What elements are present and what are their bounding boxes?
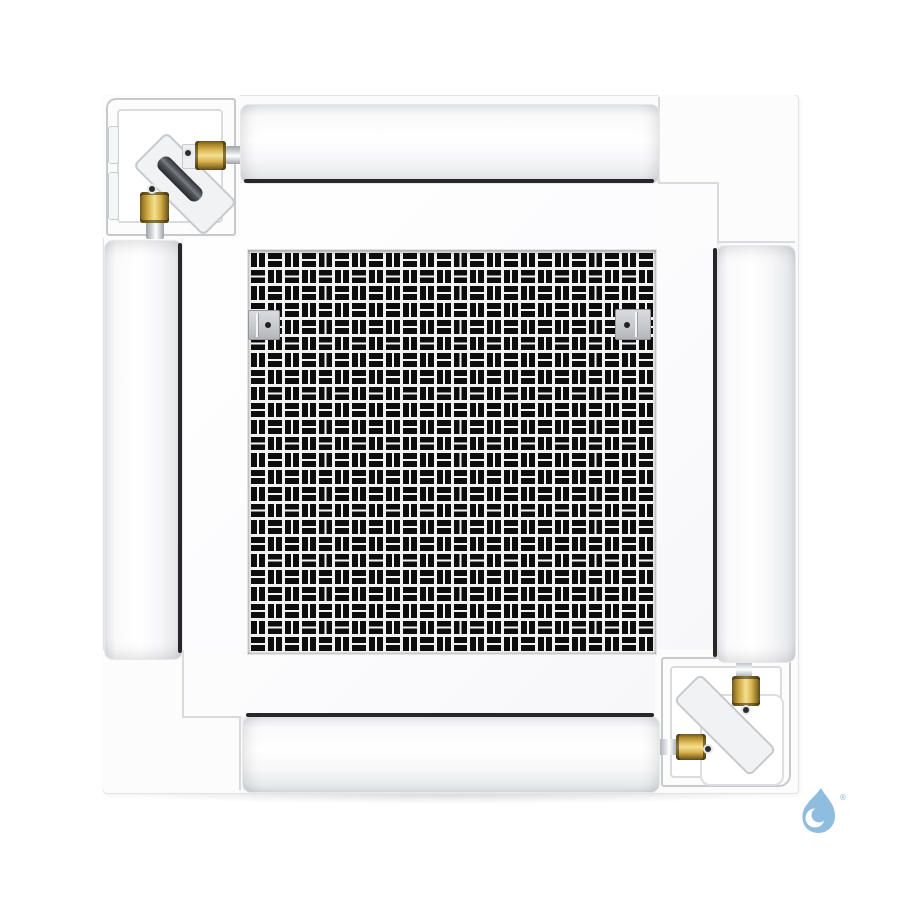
grille-cell	[538, 403, 552, 417]
brass-flare-fitting-top	[195, 141, 226, 170]
grille-cell	[622, 554, 636, 568]
grille-cell	[639, 520, 653, 534]
grille-cell	[285, 453, 299, 467]
grille-cell	[470, 320, 484, 334]
grille-cell	[521, 604, 535, 618]
grille-cell	[335, 286, 349, 300]
grille-cell	[251, 353, 265, 367]
grille-cell	[504, 587, 518, 601]
grille-cell	[319, 387, 333, 401]
grille-cell	[639, 637, 653, 651]
grille-cell	[470, 587, 484, 601]
grille-cell	[251, 504, 265, 518]
grille-cell	[251, 587, 265, 601]
grille-cell	[319, 337, 333, 351]
grille-cell	[589, 286, 603, 300]
grille-cell	[319, 487, 333, 501]
grille-cell	[352, 420, 366, 434]
grille-cell	[420, 286, 434, 300]
grille-cell	[487, 337, 501, 351]
grille-cell	[454, 487, 468, 501]
grille-cell	[521, 453, 535, 467]
grille-cell	[386, 370, 400, 384]
grille-cell	[470, 604, 484, 618]
grille-cell	[386, 453, 400, 467]
grille-cell	[319, 437, 333, 451]
grille-cell	[521, 637, 535, 651]
brass-flare-fitting-top	[732, 676, 760, 706]
grille-cell	[302, 520, 316, 534]
grille-cell	[639, 270, 653, 284]
grille-cell	[589, 587, 603, 601]
grille-cell	[538, 570, 552, 584]
frame-slot	[108, 126, 119, 164]
grille-cell	[369, 403, 383, 417]
grille-cell	[538, 537, 552, 551]
grille-cell	[487, 554, 501, 568]
grille-cell	[403, 353, 417, 367]
grille-cell	[251, 554, 265, 568]
grille-cell	[386, 604, 400, 618]
grille-cell	[352, 587, 366, 601]
grille-cell	[268, 570, 282, 584]
grille-cell	[487, 320, 501, 334]
grille-cell	[420, 621, 434, 635]
panel-seam	[182, 650, 184, 717]
flap-slot-gap-bottom	[246, 713, 654, 717]
grille-cell	[572, 353, 586, 367]
grille-cell	[386, 537, 400, 551]
grille-cell	[386, 554, 400, 568]
grille-cell	[302, 303, 316, 317]
grille-cell	[454, 286, 468, 300]
grille-cell	[555, 504, 569, 518]
grille-cell	[639, 420, 653, 434]
grille-cell	[470, 387, 484, 401]
grille-cell	[504, 403, 518, 417]
grille-cell	[589, 253, 603, 267]
grille-cell	[420, 420, 434, 434]
panel-seam	[182, 716, 241, 718]
grille-cell	[538, 270, 552, 284]
grille-cell	[403, 453, 417, 467]
grille-cell	[572, 320, 586, 334]
grille-cell	[521, 353, 535, 367]
grille-cell	[487, 621, 501, 635]
grille-cell	[555, 286, 569, 300]
grille-cell	[302, 420, 316, 434]
corner-panel-top-right	[658, 95, 797, 242]
grille-cell	[285, 621, 299, 635]
grille-cell	[369, 504, 383, 518]
product-photo-cassette-ac: ®	[0, 0, 900, 900]
grille-cell	[639, 387, 653, 401]
grille-cell	[319, 353, 333, 367]
grille-cell	[521, 270, 535, 284]
grille-cell	[521, 587, 535, 601]
grille-cell	[352, 303, 366, 317]
grille-cell	[572, 470, 586, 484]
grille-cell	[487, 637, 501, 651]
grille-cell	[504, 487, 518, 501]
grille-cell	[268, 403, 282, 417]
grille-cell	[369, 353, 383, 367]
grille-cell	[437, 604, 451, 618]
grille-cell	[420, 470, 434, 484]
grille-cell	[605, 554, 619, 568]
grille-cell	[454, 353, 468, 367]
grille-cell	[572, 437, 586, 451]
grille-cell	[386, 637, 400, 651]
grille-cell	[538, 453, 552, 467]
grille-cell	[285, 504, 299, 518]
grille-cell	[335, 621, 349, 635]
grille-cell	[302, 453, 316, 467]
grille-cell	[555, 487, 569, 501]
grille-cell	[302, 570, 316, 584]
grille-cell	[589, 637, 603, 651]
grille-cell	[454, 453, 468, 467]
grille-cell	[302, 270, 316, 284]
panel-seam	[717, 182, 719, 242]
grille-cell	[589, 520, 603, 534]
grille-cell	[352, 604, 366, 618]
grille-cell	[285, 270, 299, 284]
grille-cell	[521, 320, 535, 334]
grille-cell	[302, 487, 316, 501]
grille-latch-left	[248, 310, 280, 340]
grille-cell	[268, 370, 282, 384]
grille-cell	[622, 637, 636, 651]
grille-cell	[319, 270, 333, 284]
grille-cell	[352, 570, 366, 584]
grille-cell	[268, 520, 282, 534]
grille-cell	[538, 637, 552, 651]
grille-cell	[504, 637, 518, 651]
grille-cell	[437, 504, 451, 518]
grille-cell	[352, 437, 366, 451]
grille-cell	[386, 520, 400, 534]
grille-cell	[268, 621, 282, 635]
grille-cell	[319, 520, 333, 534]
grille-cell	[605, 403, 619, 417]
grille-cell	[302, 286, 316, 300]
grille-cell	[285, 437, 299, 451]
grille-cell	[319, 604, 333, 618]
grille-cell	[403, 570, 417, 584]
grille-cell	[622, 420, 636, 434]
grille-cell	[538, 337, 552, 351]
grille-cell	[335, 604, 349, 618]
grille-cell	[437, 437, 451, 451]
grille-cell	[420, 537, 434, 551]
grille-cell	[454, 270, 468, 284]
grille-cell	[268, 587, 282, 601]
grille-cell	[622, 253, 636, 267]
grille-cell	[487, 470, 501, 484]
grille-cell	[572, 303, 586, 317]
grille-cell	[403, 604, 417, 618]
grille-cell	[386, 286, 400, 300]
grille-cell	[285, 487, 299, 501]
grille-cell	[335, 387, 349, 401]
grille-cell	[470, 437, 484, 451]
grille-cell	[335, 637, 349, 651]
grille-cell	[504, 320, 518, 334]
screw-dot	[185, 150, 191, 156]
grille-cell	[369, 320, 383, 334]
grille-cell	[572, 504, 586, 518]
grille-cell	[572, 637, 586, 651]
grille-cell	[538, 487, 552, 501]
grille-cell	[555, 320, 569, 334]
grille-cell	[335, 353, 349, 367]
grille-cell	[251, 270, 265, 284]
grille-cell	[538, 320, 552, 334]
grille-cell	[437, 353, 451, 367]
grille-cell	[572, 253, 586, 267]
grille-cell	[639, 253, 653, 267]
grille-cell	[521, 403, 535, 417]
grille-cell	[352, 453, 366, 467]
grille-cell	[386, 621, 400, 635]
grille-cell	[268, 453, 282, 467]
grille-cell	[572, 604, 586, 618]
grille-cell	[302, 504, 316, 518]
grille-cell	[605, 253, 619, 267]
grille-cell	[302, 604, 316, 618]
grille-cell	[302, 637, 316, 651]
grille-cell	[487, 587, 501, 601]
grille-cell	[504, 387, 518, 401]
grille-cell	[538, 604, 552, 618]
grille-cell	[572, 453, 586, 467]
grille-cell	[589, 470, 603, 484]
grille-cell	[589, 554, 603, 568]
grille-cell	[403, 470, 417, 484]
grille-cell	[589, 537, 603, 551]
grille-cell	[572, 487, 586, 501]
grille-cell	[470, 270, 484, 284]
grille-cell	[521, 337, 535, 351]
grille-cell	[470, 253, 484, 267]
grille-cell	[437, 537, 451, 551]
grille-cell	[470, 570, 484, 584]
grille-cell	[403, 270, 417, 284]
grille-cell	[454, 504, 468, 518]
grille-cell	[589, 604, 603, 618]
grille-cell	[555, 253, 569, 267]
grille-cell	[487, 303, 501, 317]
louver-flap-right	[716, 245, 796, 663]
grille-cell	[605, 604, 619, 618]
grille-cell	[504, 470, 518, 484]
grille-cell	[555, 270, 569, 284]
grille-cell	[572, 520, 586, 534]
grille-cell	[572, 554, 586, 568]
grille-cell	[335, 320, 349, 334]
grille-cell	[487, 570, 501, 584]
grille-cell	[335, 520, 349, 534]
grille-cell	[538, 470, 552, 484]
grille-cell	[538, 437, 552, 451]
grille-latch-right	[615, 309, 651, 340]
grille-cell	[251, 403, 265, 417]
grille-cell	[403, 403, 417, 417]
water-drop-logo: ®	[799, 784, 861, 846]
grille-cell	[403, 637, 417, 651]
grille-cell	[403, 487, 417, 501]
grille-cell	[352, 320, 366, 334]
grille-cell	[605, 504, 619, 518]
grille-cell	[555, 520, 569, 534]
grille-cell	[572, 403, 586, 417]
grille-cell	[521, 370, 535, 384]
grille-cell	[454, 370, 468, 384]
grille-cell	[386, 504, 400, 518]
grille-cell	[504, 286, 518, 300]
grille-cell	[386, 387, 400, 401]
grille-cell	[622, 403, 636, 417]
grille-cell	[454, 437, 468, 451]
grille-cell	[538, 303, 552, 317]
grille-cell	[470, 286, 484, 300]
grille-cell	[605, 420, 619, 434]
grille-cell	[319, 621, 333, 635]
grille-cell	[369, 487, 383, 501]
grille-cell	[319, 504, 333, 518]
grille-cell	[487, 504, 501, 518]
grille-cell	[437, 487, 451, 501]
grille-cell	[437, 370, 451, 384]
grille-cell	[639, 554, 653, 568]
grille-cell	[352, 504, 366, 518]
grille-cell	[504, 504, 518, 518]
panel-seam	[717, 241, 795, 243]
grille-cell	[589, 403, 603, 417]
grille-cell	[437, 303, 451, 317]
grille-cell	[369, 637, 383, 651]
grille-cell	[268, 270, 282, 284]
grille-cell	[470, 353, 484, 367]
grille-cell	[555, 387, 569, 401]
grille-cell	[454, 604, 468, 618]
grille-cell	[420, 337, 434, 351]
screw-dot	[149, 186, 155, 192]
grille-cell	[555, 587, 569, 601]
grille-cell	[302, 587, 316, 601]
grille-cell	[521, 470, 535, 484]
grille-cell	[454, 420, 468, 434]
grille-cell	[622, 437, 636, 451]
grille-cell	[369, 587, 383, 601]
grille-cell	[487, 520, 501, 534]
grille-cell	[605, 286, 619, 300]
grille-cell	[437, 420, 451, 434]
grille-cell	[622, 520, 636, 534]
grille-cell	[420, 387, 434, 401]
grille-cell	[403, 303, 417, 317]
grille-cell	[251, 387, 265, 401]
grille-cell	[487, 270, 501, 284]
grille-cell	[521, 621, 535, 635]
grille-cell	[504, 537, 518, 551]
grille-cell	[572, 537, 586, 551]
grille-cell	[521, 286, 535, 300]
grille-cell	[589, 437, 603, 451]
grille-cell	[555, 537, 569, 551]
grille-cell	[555, 470, 569, 484]
grille-cell	[319, 286, 333, 300]
grille-cell	[319, 554, 333, 568]
grille-cell	[437, 270, 451, 284]
latch-seam	[256, 313, 258, 337]
grille-cell	[454, 621, 468, 635]
pipe-stub	[658, 739, 678, 755]
grille-cell	[622, 487, 636, 501]
grille-cell	[268, 504, 282, 518]
grille-cell	[504, 453, 518, 467]
grille-cell	[386, 337, 400, 351]
grille-cell	[420, 587, 434, 601]
grille-cell	[302, 337, 316, 351]
grille-cell	[352, 370, 366, 384]
grille-cell	[538, 520, 552, 534]
grille-cell	[437, 403, 451, 417]
grille-cell	[538, 420, 552, 434]
grille-cell	[622, 537, 636, 551]
grille-cell	[589, 504, 603, 518]
grille-cell	[251, 570, 265, 584]
grille-cell	[403, 587, 417, 601]
grille-cell	[622, 453, 636, 467]
grille-cell	[369, 270, 383, 284]
water-drop-icon	[799, 784, 861, 846]
grille-cell	[420, 403, 434, 417]
grille-cell	[268, 470, 282, 484]
grille-cell	[589, 370, 603, 384]
grille-cell	[437, 453, 451, 467]
louver-flap-top	[240, 104, 660, 184]
intake-grille	[248, 250, 656, 654]
grille-cell	[555, 303, 569, 317]
grille-cell	[572, 420, 586, 434]
grille-cell	[639, 587, 653, 601]
grille-cell	[369, 286, 383, 300]
grille-cell	[268, 253, 282, 267]
grille-cell	[386, 353, 400, 367]
grille-cell	[572, 370, 586, 384]
grille-cell	[268, 420, 282, 434]
louver-flap-bottom	[242, 716, 660, 793]
grille-cell	[268, 604, 282, 618]
grille-cell	[319, 420, 333, 434]
grille-cell	[622, 587, 636, 601]
louver-flap-left	[104, 240, 183, 660]
registered-mark: ®	[839, 793, 847, 802]
grille-cell	[605, 537, 619, 551]
grille-cell	[504, 621, 518, 635]
grille-cell	[369, 253, 383, 267]
grille-cell	[352, 470, 366, 484]
grille-cell	[521, 537, 535, 551]
grille-cell	[504, 570, 518, 584]
grille-cell	[470, 470, 484, 484]
grille-cell	[454, 303, 468, 317]
grille-cell	[605, 621, 619, 635]
grille-cell	[622, 270, 636, 284]
grille-cell	[251, 420, 265, 434]
